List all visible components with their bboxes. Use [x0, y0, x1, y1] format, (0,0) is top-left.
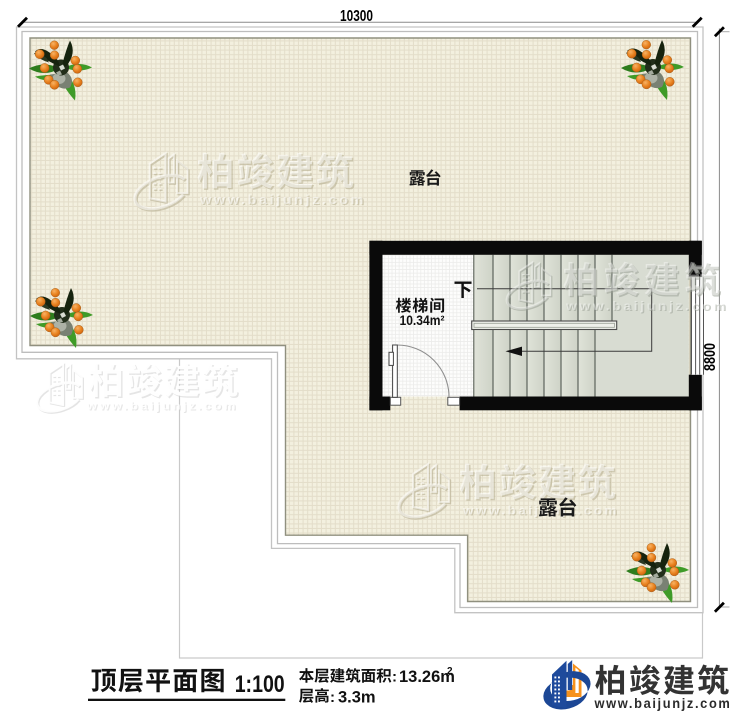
svg-text:2: 2 — [447, 666, 453, 677]
svg-text:3.3m: 3.3m — [338, 689, 376, 707]
svg-text:www.baijunjz.com: www.baijunjz.com — [199, 193, 366, 207]
svg-text:10.34m²: 10.34m² — [400, 313, 445, 328]
svg-text::: : — [392, 669, 397, 686]
svg-text::: : — [330, 689, 335, 706]
svg-text:www.baijunjz.com: www.baijunjz.com — [565, 301, 728, 313]
svg-text:1:100: 1:100 — [235, 671, 285, 698]
svg-text:www.baijunjz.com: www.baijunjz.com — [594, 696, 732, 711]
svg-text:8800: 8800 — [702, 343, 719, 371]
svg-text:www.baijunjz.com: www.baijunjz.com — [86, 401, 238, 413]
svg-text:10300: 10300 — [340, 8, 373, 25]
